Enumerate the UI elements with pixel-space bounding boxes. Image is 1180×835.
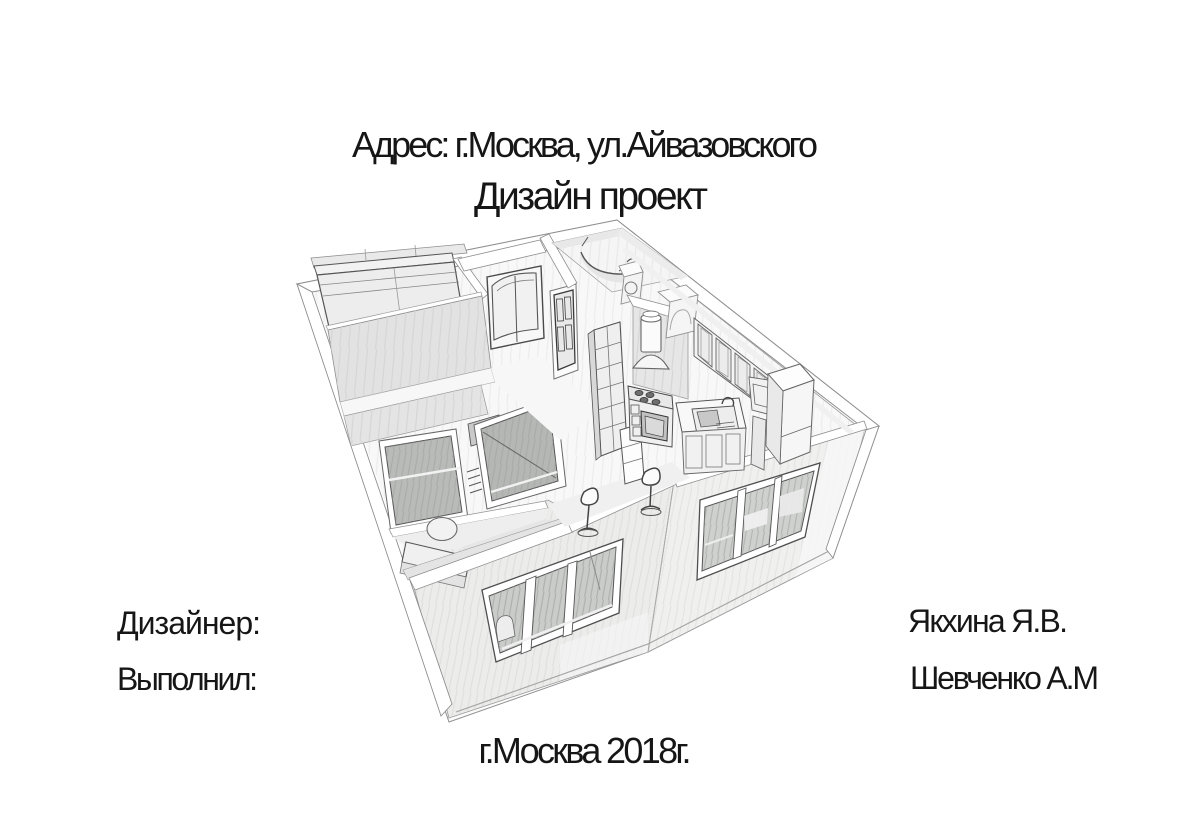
svg-text:Дизайн проект: Дизайн проект — [474, 175, 708, 218]
svg-text:Шевченко А.М: Шевченко А.М — [910, 660, 1099, 696]
svg-text:Выполнил:: Выполнил: — [117, 661, 258, 697]
svg-text:Якхина Я.В.: Якхина Я.В. — [908, 603, 1068, 639]
svg-text:Адрес: г.Москва, ул.Айвазовско: Адрес: г.Москва, ул.Айвазовского — [352, 124, 818, 165]
svg-text:Дизайнер:: Дизайнер: — [117, 605, 261, 641]
svg-text:г.Москва 2018г.: г.Москва 2018г. — [479, 730, 692, 771]
